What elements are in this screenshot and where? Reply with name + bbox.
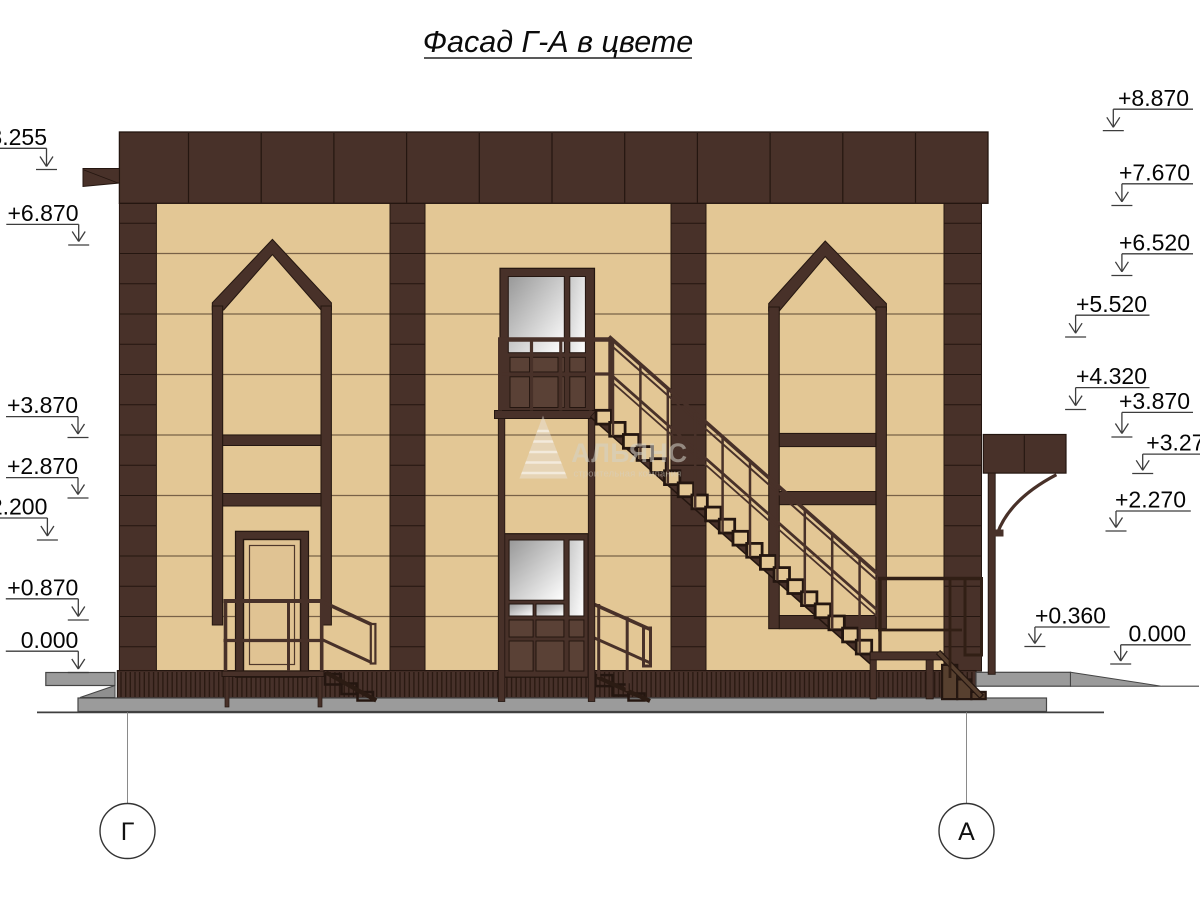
- svg-text:+2.270: +2.270: [1115, 487, 1186, 513]
- svg-text:+2.200: +2.200: [0, 494, 47, 520]
- svg-text:+8.870: +8.870: [1118, 85, 1189, 111]
- svg-text:0.000: 0.000: [21, 627, 79, 653]
- svg-text:+2.870: +2.870: [7, 453, 78, 479]
- svg-text:Фасад Г-А в цвете: Фасад Г-А в цвете: [423, 25, 693, 59]
- svg-text:+6.870: +6.870: [8, 200, 79, 226]
- svg-text:0.000: 0.000: [1128, 620, 1186, 646]
- svg-text:+4.320: +4.320: [1076, 363, 1147, 389]
- svg-text:+8.255: +8.255: [0, 124, 47, 150]
- svg-text:+5.520: +5.520: [1076, 291, 1147, 317]
- svg-text:+0.870: +0.870: [7, 574, 78, 600]
- svg-text:+7.670: +7.670: [1119, 159, 1190, 185]
- svg-text:строительная компания: строительная компания: [573, 468, 681, 479]
- svg-text:Г: Г: [121, 818, 135, 846]
- svg-text:А: А: [958, 818, 975, 846]
- svg-text:+3.870: +3.870: [1119, 388, 1190, 414]
- svg-text:+3.870: +3.870: [7, 392, 78, 418]
- svg-text:+0.360: +0.360: [1035, 603, 1106, 629]
- svg-text:АЛЬЯНС: АЛЬЯНС: [571, 438, 687, 468]
- svg-text:+3.270: +3.270: [1146, 430, 1200, 456]
- svg-text:+6.520: +6.520: [1119, 229, 1190, 255]
